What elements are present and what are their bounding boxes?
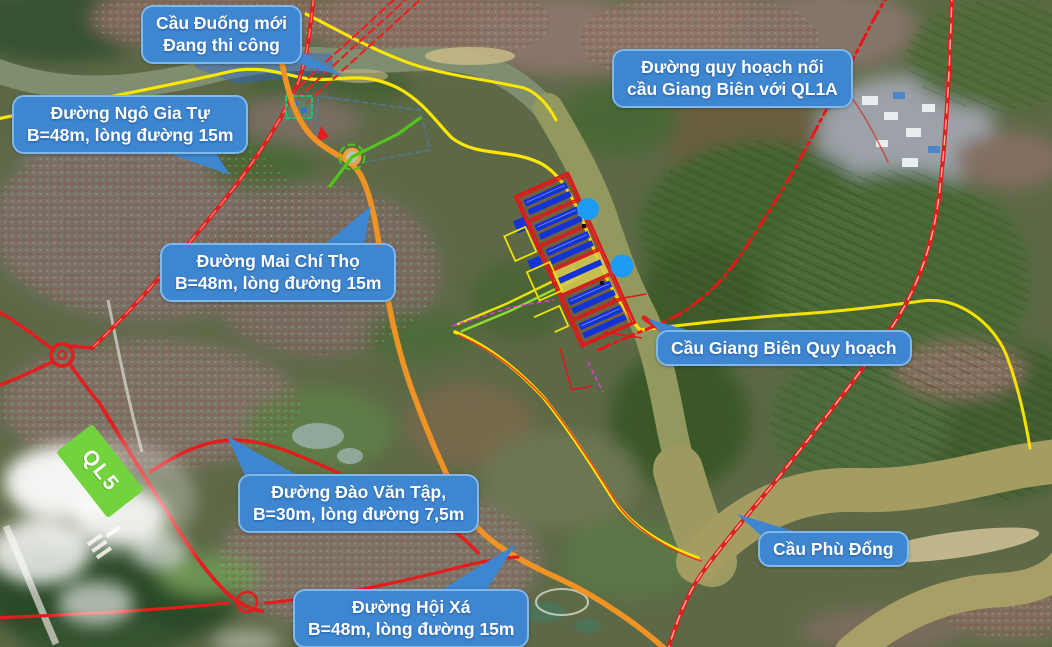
- callout-line: B=30m, lòng đường 7,5m: [253, 503, 464, 525]
- callout-hoi-xa: Đường Hội Xá B=48m, lòng đường 15m: [293, 589, 529, 647]
- callout-line: Cầu Phù Đổng: [773, 538, 894, 560]
- callout-line: cầu Giang Biên với QL1A: [627, 78, 838, 100]
- callout-line: B=48m, lòng đường 15m: [27, 124, 233, 146]
- callout-line: Đường Hội Xá: [308, 596, 514, 618]
- callout-line: Cầu Giang Biên Quy hoạch: [671, 337, 897, 359]
- callout-mai-chi-tho: Đường Mai Chí Thọ B=48m, lòng đường 15m: [160, 243, 396, 302]
- callout-quy-hoach-noi: Đường quy hoạch nối cầu Giang Biên với Q…: [612, 49, 853, 108]
- callout-line: B=48m, lòng đường 15m: [308, 618, 514, 640]
- callout-giang-bien: Cầu Giang Biên Quy hoạch: [656, 330, 912, 366]
- callout-cau-duong-moi: Cầu Đuống mới Đang thi công: [141, 5, 302, 64]
- callout-line: Đường Ngô Gia Tự: [27, 102, 233, 124]
- callout-dao-van-tap: Đường Đào Văn Tập, B=30m, lòng đường 7,5…: [238, 474, 479, 533]
- callout-line: Đường quy hoạch nối: [627, 56, 838, 78]
- callout-line: Cầu Đuống mới: [156, 12, 287, 34]
- annotated-satellite-map: Cầu Đuống mới Đang thi công Đường quy ho…: [0, 0, 1052, 647]
- callout-line: Đang thi công: [156, 34, 287, 56]
- plan-marker-circle-south: [611, 255, 634, 278]
- callout-line: Đường Mai Chí Thọ: [175, 250, 381, 272]
- callout-line: B=48m, lòng đường 15m: [175, 272, 381, 294]
- plan-marker-circle-north: [577, 198, 599, 220]
- callout-line: Đường Đào Văn Tập,: [253, 481, 464, 503]
- callout-phu-dong: Cầu Phù Đổng: [758, 531, 909, 567]
- callout-ngo-gia-tu: Đường Ngô Gia Tự B=48m, lòng đường 15m: [12, 95, 248, 154]
